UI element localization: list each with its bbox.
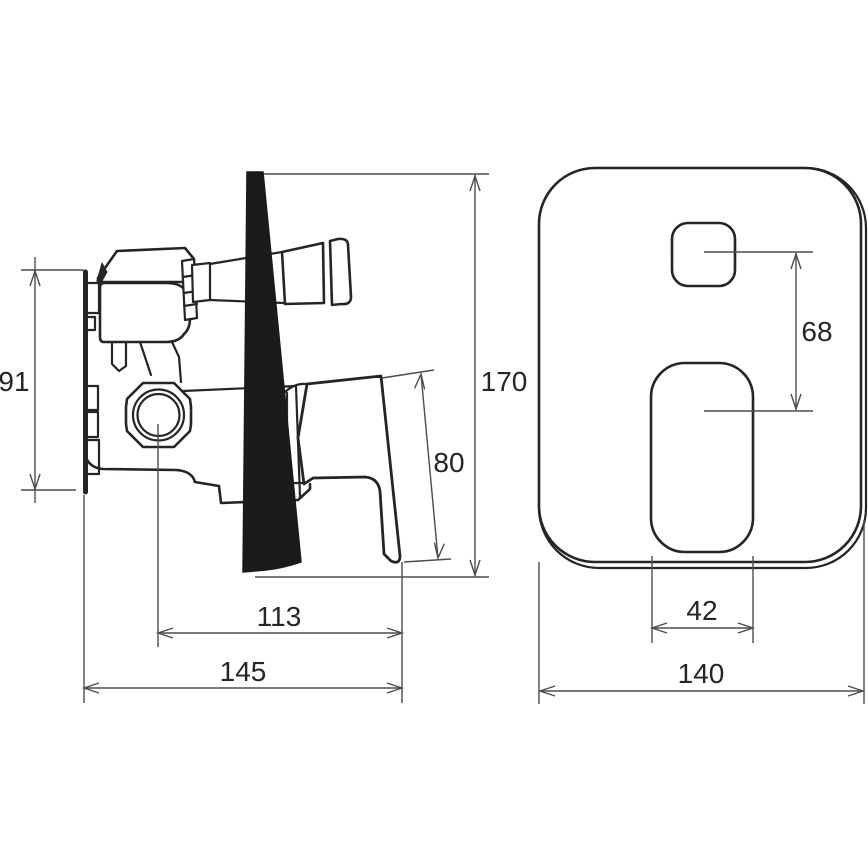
diverter-knob-cap [330,239,351,305]
lever-cutout [651,363,753,552]
diverter-knob-body [282,243,324,304]
dimension-label-80: 80 [433,447,464,478]
valve-main-box [100,283,190,342]
side-view [85,172,400,572]
dimension-label-91: 91 [0,366,30,397]
valve-top-cap [98,248,194,282]
stem-collar [192,263,210,302]
wall-bracket [87,283,99,313]
front-view [539,168,866,568]
trim-plate-edge [243,172,301,572]
body-neck [140,342,181,382]
body-tab [112,342,126,371]
dimension-91: 91 [0,257,84,503]
dimension-label-145: 145 [220,656,267,687]
dimension-label-68: 68 [801,316,832,347]
extension-lines [21,270,84,490]
wall-bracket [87,412,98,437]
lever-handle [298,376,400,562]
dimension-label-170: 170 [481,366,528,397]
technical-drawing-canvas: 91 170 80 113 145 [0,0,868,868]
wall-bracket [87,386,98,410]
dimension-label-42: 42 [686,595,717,626]
diverter-button-cutout [672,223,735,286]
wall-bracket [87,317,95,330]
dimension-label-113: 113 [257,601,302,632]
technical-drawing-page: 91 170 80 113 145 [0,0,868,868]
dimension-label-140: 140 [678,658,725,689]
